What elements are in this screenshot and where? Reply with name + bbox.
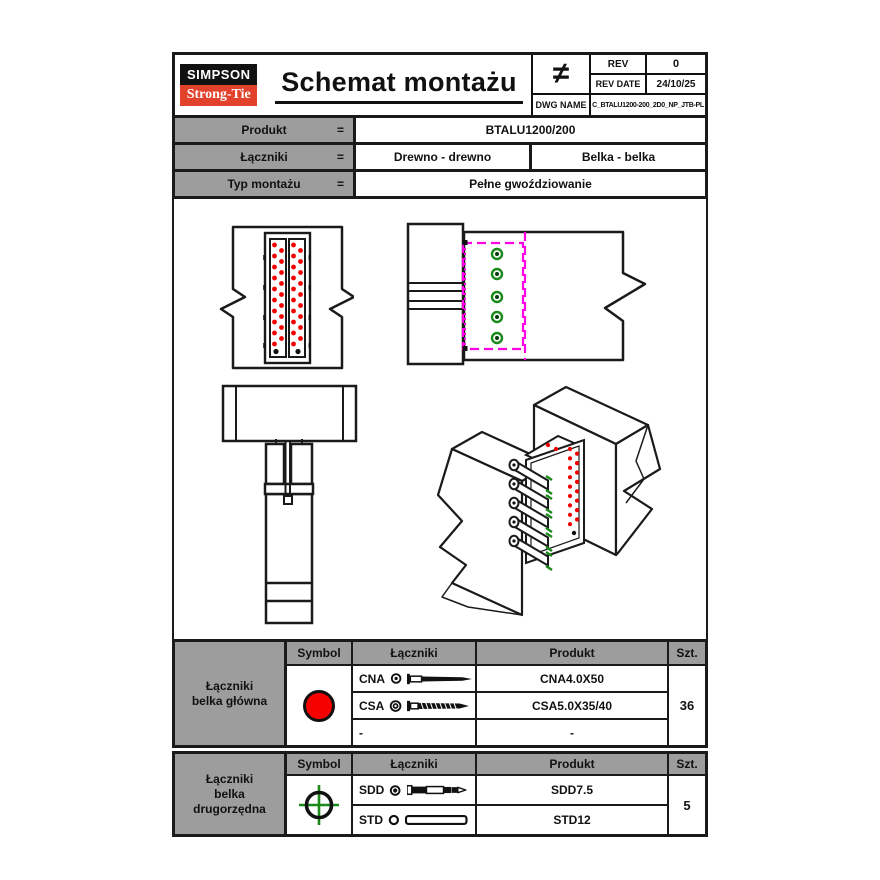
col-header-symbol: Symbol <box>287 754 351 774</box>
dwg-name-value: C_BTALU1200-200_2D0_NP_JTB-PL <box>591 95 705 115</box>
dwg-name-label: DWG NAME <box>533 95 591 115</box>
group-label-secondary-beam: Łączniki belka drugorzędna <box>175 754 287 834</box>
assembly-drawing-sheet: SIMPSON Strong-Tie Schemat montażu ≠ REV… <box>0 0 880 880</box>
typ-montazu-label: Typ montażu <box>227 177 300 191</box>
fastener-head-icon <box>389 784 401 797</box>
col-header-laczniki: Łączniki <box>351 754 475 774</box>
main-beam-fastener-table: Łączniki belka główna Symbol Łączniki Pr… <box>172 639 708 748</box>
fastener-head-icon <box>390 672 402 685</box>
not-equal-icon: ≠ <box>533 55 591 95</box>
fastener-code: CSA <box>359 699 384 713</box>
group-label-main-beam: Łączniki belka główna <box>175 642 287 745</box>
red-circle-symbol-icon <box>303 690 335 722</box>
logo-simpson: SIMPSON <box>180 64 257 85</box>
drawing-area <box>172 199 708 639</box>
product-row: Produkt= BTALU1200/200 <box>175 118 705 145</box>
product-name: CSA5.0X35/40 <box>475 691 667 718</box>
col-header-laczniki: Łączniki <box>351 642 475 664</box>
fastener-code: - <box>351 718 475 745</box>
quantity-value: 36 <box>667 664 705 745</box>
mount-type-row: Typ montażu= Pełne gwoździowanie <box>175 172 705 196</box>
smooth-dowel-icon <box>405 813 475 827</box>
product-name: STD12 <box>475 804 667 834</box>
revision-block: ≠ REV 0 REV DATE 24/10/25 DWG NAME C_BTA… <box>531 55 705 115</box>
screw-icon <box>407 699 475 713</box>
dowel-screw-icon <box>407 783 475 797</box>
quantity-value: 5 <box>667 774 705 834</box>
nail-icon <box>407 672 475 686</box>
drawing-side-view <box>396 209 681 379</box>
sheet-title: Schemat montażu <box>275 67 523 104</box>
drawing-isometric-view <box>422 383 680 638</box>
fastener-code: STD <box>359 813 383 827</box>
laczniki-value-material: Drewno - drewno <box>356 145 529 169</box>
logo-strongtie: Strong-Tie <box>180 85 257 106</box>
product-name: - <box>475 718 667 745</box>
green-crosshair-symbol-icon <box>297 783 341 827</box>
rev-date-value: 24/10/25 <box>647 75 705 95</box>
brand-logo: SIMPSON Strong-Tie <box>175 55 267 115</box>
product-name: SDD7.5 <box>475 774 667 804</box>
product-info-table: Produkt= BTALU1200/200 Łączniki= Drewno … <box>172 118 708 199</box>
equals-sign: = <box>337 177 344 191</box>
col-header-szt: Szt. <box>667 642 705 664</box>
produkt-value: BTALU1200/200 <box>356 118 705 142</box>
drawing-front-view <box>212 211 354 381</box>
secondary-beam-fastener-table: Łączniki belka drugorzędna Symbol Łączni… <box>172 751 708 837</box>
connectors-row: Łączniki= Drewno - drewno Belka - belka <box>175 145 705 172</box>
sheet-title-cell: Schemat montażu <box>267 55 531 115</box>
product-name: CNA4.0X50 <box>475 664 667 691</box>
col-header-szt: Szt. <box>667 754 705 774</box>
equals-sign: = <box>337 123 344 137</box>
laczniki-label: Łączniki <box>240 150 287 164</box>
col-header-produkt: Produkt <box>475 642 667 664</box>
rev-label: REV <box>591 55 647 75</box>
typ-montazu-value: Pełne gwoździowanie <box>356 172 705 196</box>
fastener-code: SDD <box>359 783 384 797</box>
document-frame: SIMPSON Strong-Tie Schemat montażu ≠ REV… <box>172 52 708 837</box>
title-block: SIMPSON Strong-Tie Schemat montażu ≠ REV… <box>172 52 708 118</box>
fastener-head-icon <box>389 699 402 713</box>
col-header-symbol: Symbol <box>287 642 351 664</box>
rev-date-label: REV DATE <box>591 75 647 95</box>
fastener-head-icon <box>388 814 400 826</box>
produkt-label: Produkt <box>241 123 286 137</box>
col-header-produkt: Produkt <box>475 754 667 774</box>
laczniki-value-joint: Belka - belka <box>529 145 705 169</box>
drawing-top-view <box>219 384 359 626</box>
rev-value: 0 <box>647 55 705 75</box>
fastener-code: CNA <box>359 672 385 686</box>
equals-sign: = <box>337 150 344 164</box>
